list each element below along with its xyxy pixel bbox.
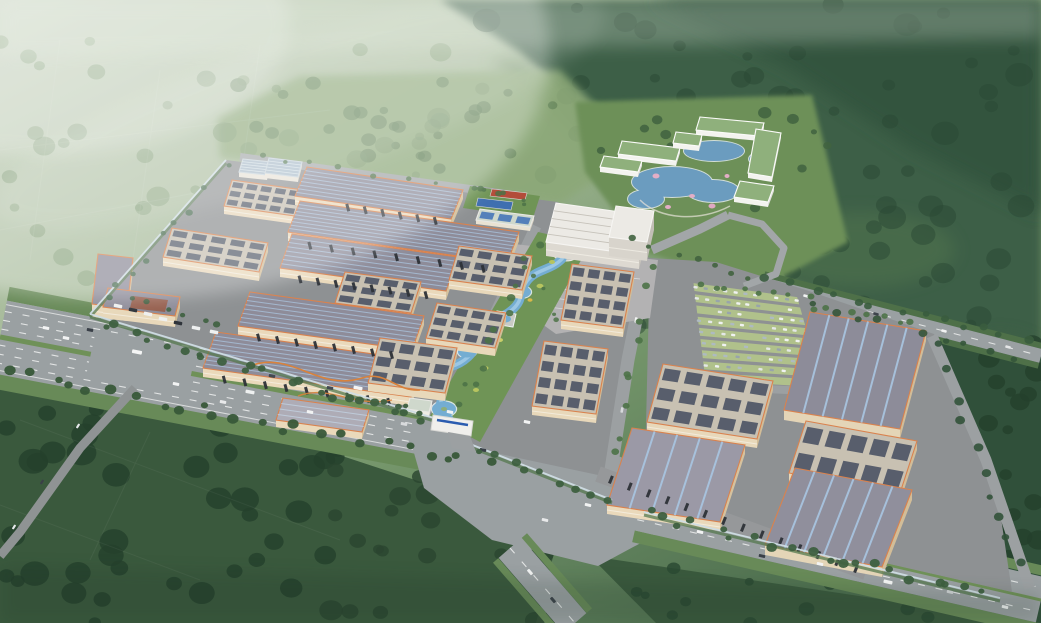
- trees-warehouse-east: [822, 305, 829, 311]
- trees-plaza: [541, 287, 545, 290]
- trees-highway-south: [162, 404, 170, 410]
- dock-trailers-row5: [244, 379, 246, 387]
- trees-intersection: [556, 480, 564, 487]
- trees-highway-north: [181, 347, 190, 355]
- flatted-factory-e2-roof-panel: [557, 363, 570, 374]
- trees-intersection: [536, 468, 543, 474]
- flatted-factory-e1-roof-panel: [600, 285, 613, 295]
- dock-trailers-row3: [407, 289, 409, 297]
- trees-garden-strip: [506, 310, 513, 316]
- flatted-factory-f3-roof-panel: [437, 349, 453, 360]
- trees-highway-north: [355, 397, 364, 405]
- resort-center-block-roof: [673, 132, 702, 146]
- dock-trailers-row4: [372, 349, 374, 357]
- southwest-forest: [99, 529, 128, 554]
- trees-parking-edge: [721, 286, 727, 291]
- dock-trailers-row4: [391, 351, 393, 359]
- southwest-forest: [299, 455, 325, 477]
- trees-highway-north: [197, 354, 204, 360]
- trees-east-road: [870, 559, 880, 568]
- trees-highway-north: [416, 418, 424, 425]
- trees-spine-road: [611, 448, 619, 455]
- flatted-factory-e2-roof-panel: [589, 367, 602, 378]
- trees-warehouse-east: [906, 319, 913, 325]
- mountain-trees: [866, 220, 882, 234]
- trees-sports: [522, 198, 526, 202]
- dock-trailers-row2: [439, 259, 441, 267]
- flatted-factory-e1-roof-panel: [564, 309, 577, 319]
- trees-east-road: [827, 558, 834, 564]
- flatted-factory-f3-roof-panel: [410, 376, 426, 387]
- mountain-trees: [979, 84, 998, 100]
- trees-ne-road-north: [814, 287, 823, 295]
- southwest-forest: [19, 449, 48, 474]
- southwest-forest: [249, 553, 266, 567]
- mountain-trees: [931, 122, 959, 145]
- dock-trailers-row2: [374, 251, 376, 259]
- trees-gate: [395, 404, 402, 410]
- trees-parking-edge: [785, 292, 790, 296]
- trees-plaza: [520, 256, 526, 261]
- trees-highway-north: [345, 394, 354, 402]
- warehouse-east-2-roof: [607, 428, 745, 522]
- flatted-factory-east-1-roof-panel: [717, 417, 736, 431]
- trees-dormitory: [166, 307, 171, 311]
- trees-access-road: [982, 469, 991, 477]
- trees-east-road: [788, 544, 796, 551]
- trees-access-road: [955, 416, 965, 424]
- trees-access-road: [942, 365, 951, 373]
- mountain-trees: [882, 115, 898, 129]
- south-forest: [421, 512, 440, 528]
- trees-dormitory: [143, 299, 149, 304]
- midground-trees: [548, 101, 557, 109]
- dock-trailers-row4: [334, 344, 336, 352]
- trees-east-road: [851, 560, 859, 567]
- mountain-trees: [911, 224, 935, 245]
- trees-intersection: [512, 458, 521, 466]
- east-forest-trees: [988, 375, 1005, 390]
- trees-ne-road-south: [810, 301, 816, 307]
- trees-parking-edge: [698, 282, 705, 288]
- trees-resort-edge: [646, 245, 651, 249]
- mountain-trees: [876, 196, 897, 214]
- trees-highway-south: [385, 438, 393, 445]
- flatted-factory-e2-roof-panel: [592, 351, 605, 362]
- trees-ne-road-south: [832, 309, 841, 317]
- east-forest-trees: [1002, 425, 1013, 434]
- flatted-factory-e2-roof-panel: [554, 379, 567, 390]
- trees-highway-south: [174, 406, 184, 415]
- trees-highway-north: [293, 377, 303, 385]
- southwest-forest: [183, 456, 209, 478]
- flatted-factory-e1-roof-panel: [603, 271, 616, 281]
- trees-garden-strip: [490, 326, 498, 332]
- flatted-factory-f3-roof-panel: [418, 346, 434, 357]
- trees-east-road: [658, 512, 668, 520]
- resort-trees: [823, 142, 831, 149]
- southwest-forest: [314, 546, 336, 564]
- trees-resort-edge: [695, 256, 702, 262]
- trees-access-road: [935, 340, 942, 346]
- flatted-factory-e1-roof-panel: [610, 315, 623, 325]
- trees-warehouse-east: [848, 309, 856, 315]
- trees-east-road: [885, 566, 893, 572]
- flatted-factory-east-1-roof-panel: [651, 407, 670, 421]
- trees-highway-south: [64, 381, 73, 388]
- southwest-forest: [213, 443, 237, 464]
- trees-highway-south: [487, 458, 497, 466]
- flatted-factory-e1-roof-panel: [613, 301, 626, 311]
- garden-shrubs: [528, 298, 533, 302]
- flatted-factory-east-1-roof-panel: [722, 398, 741, 412]
- trees-spine-road: [617, 436, 623, 441]
- south-forest: [418, 548, 436, 563]
- trees-garden-strip: [513, 284, 518, 289]
- flatted-factory-east-1-roof-panel: [700, 394, 719, 408]
- flatted-factory-f3-roof-panel: [433, 364, 449, 375]
- dock-trailers-row4: [315, 341, 317, 349]
- trees-ne-road-south: [919, 329, 928, 337]
- trees-highway-south: [132, 392, 141, 400]
- trees-ne-road-south: [873, 315, 882, 322]
- trees-east-road: [673, 523, 680, 529]
- trees-spine-road: [650, 264, 657, 270]
- trees-ne-road-north: [899, 310, 906, 316]
- trees-east-road: [751, 533, 759, 540]
- flatted-factory-e1-roof-panel: [616, 287, 629, 297]
- resort-trees: [797, 164, 806, 172]
- east-forest-trees: [999, 469, 1012, 480]
- trees-resort-edge: [629, 235, 636, 241]
- resort-trees: [811, 129, 817, 134]
- mountain-trees: [901, 165, 915, 177]
- trees-highway-north: [258, 365, 266, 372]
- flatted-factory-east-1-roof-panel: [684, 372, 703, 386]
- trees-resort-edge: [712, 263, 718, 268]
- flatted-factory-e1-roof-panel: [582, 297, 595, 307]
- trees-ne-road-south: [855, 316, 862, 322]
- east-forest-trees: [1010, 394, 1030, 411]
- trees-garden-strip: [522, 265, 528, 270]
- trees-highway-north: [246, 361, 255, 369]
- resort-trees: [787, 114, 799, 124]
- trees-ne-road-north: [960, 325, 967, 331]
- trees-spine-road: [642, 282, 650, 289]
- flatted-factory-e2-roof-panel: [567, 397, 580, 408]
- dock-trailers-row3: [371, 285, 373, 293]
- trees-ne-road-north: [759, 274, 769, 282]
- trees-dormitory: [213, 321, 220, 327]
- flatted-factory-f3-roof-panel: [395, 359, 411, 370]
- mountain-trees: [789, 46, 806, 61]
- mountain-trees: [919, 276, 932, 287]
- dock-trailers-row4: [258, 334, 260, 342]
- flatted-factory-e2-roof-panel: [541, 361, 554, 372]
- flatted-factory-east-1-roof-panel: [695, 414, 714, 428]
- trees-warehouse-east: [810, 307, 817, 313]
- trees-east-road: [903, 576, 914, 585]
- trees-intersection: [571, 486, 580, 493]
- trees-east-road: [941, 581, 949, 588]
- resort-trees: [640, 125, 649, 133]
- trees-plaza: [552, 313, 556, 316]
- trees-ne-road-south: [986, 348, 994, 355]
- mountain-trees: [931, 263, 955, 283]
- trees-intersection: [603, 497, 611, 504]
- flatted-factory-east-1-roof-panel: [678, 391, 697, 405]
- trees-highway-south: [259, 419, 267, 426]
- scene-layers: [0, 0, 1041, 623]
- trees-highway-south: [445, 456, 452, 462]
- south-forest: [376, 545, 389, 556]
- flatted-factory-e2-roof-panel: [538, 377, 551, 388]
- trees-highway-south: [336, 429, 346, 437]
- southwest-forest: [279, 459, 298, 475]
- trees-ne-road-north: [923, 311, 930, 317]
- mountain-trees: [985, 101, 998, 112]
- trees-highway-south: [427, 452, 437, 461]
- trees-gate: [403, 404, 408, 408]
- mountain-trees: [650, 74, 660, 83]
- trees-garden-strip: [455, 401, 462, 407]
- dock-trailers-row5: [264, 381, 266, 389]
- trees-highway-south: [4, 365, 15, 375]
- trees-ne-road-north: [830, 291, 837, 297]
- trees-resort-edge: [676, 253, 682, 258]
- trees-intersection: [520, 466, 529, 473]
- trees-east-road: [838, 559, 849, 568]
- trees-access-road: [954, 397, 964, 405]
- trees-highway-north: [328, 394, 337, 402]
- trees-highway-north: [400, 409, 408, 416]
- flatted-factory-e2-roof-panel: [573, 365, 586, 376]
- cherry-blossom-trees: [709, 204, 716, 209]
- trees-highway-south: [80, 386, 90, 394]
- trees-east-road: [766, 543, 777, 552]
- trees-garden-strip: [485, 337, 493, 344]
- flatted-factory-e2-roof-panel: [576, 349, 589, 360]
- trees-gate: [381, 399, 388, 405]
- dock-trailers-row5: [223, 376, 225, 384]
- trees-highway-north: [318, 390, 325, 396]
- trees-highway-south: [105, 384, 117, 394]
- flatted-factory-e2-roof-panel: [570, 381, 583, 392]
- mountain-trees: [980, 275, 1000, 292]
- trees-highway-north: [391, 409, 399, 416]
- pond-island: [441, 407, 447, 411]
- trees-ne-road-north: [1024, 336, 1034, 344]
- trees-access-road: [987, 494, 993, 499]
- southwest-forest: [286, 500, 312, 523]
- trees-highway-south: [407, 442, 415, 449]
- flatted-factory-f3-roof-panel: [379, 341, 395, 352]
- trees-parking-edge: [742, 286, 748, 291]
- dock-trailers-row4: [296, 339, 298, 347]
- gatehouse-roof: [407, 398, 432, 412]
- mountain-trees: [863, 165, 880, 180]
- mountain-trees: [918, 195, 943, 216]
- aerial-site-rendering: Aerial rendering of industrial logistics…: [0, 0, 1041, 623]
- trees-east-road: [720, 526, 727, 532]
- trees-ne-road-south: [1011, 357, 1018, 363]
- trees-dormitory: [203, 318, 209, 323]
- trees-highway-north: [109, 320, 119, 328]
- trees-access-road: [1016, 559, 1025, 567]
- flatted-factory-e1-roof-panel: [587, 269, 600, 279]
- trees-highway-south: [206, 411, 216, 420]
- dock-trailers-row2: [482, 265, 484, 273]
- trees-highway-north: [217, 357, 227, 365]
- flatted-factory-e1-roof-panel: [569, 281, 582, 291]
- flatted-factory-east-1-roof-panel: [750, 382, 769, 396]
- trees-intersection: [586, 491, 595, 498]
- trees-resort-edge: [745, 276, 750, 281]
- dock-trailers-row4: [353, 346, 355, 354]
- trees-access-road: [994, 513, 1004, 521]
- trees-parking-edge: [807, 293, 814, 299]
- trees-highway-south: [287, 419, 298, 428]
- dock-trailers-row3: [335, 280, 337, 288]
- trees-highway-north: [103, 324, 109, 329]
- south-forest: [349, 534, 366, 548]
- southeast-trees: [667, 562, 681, 574]
- garden-shrubs: [507, 328, 512, 332]
- south-forest: [327, 463, 343, 477]
- flatted-factory-e2-roof-panel: [586, 383, 599, 394]
- trees-ne-road-south: [943, 338, 949, 343]
- flatted-factory-e1-roof-panel: [618, 273, 631, 283]
- flatted-factory-e1-roof-panel: [566, 295, 579, 305]
- trees-sports: [522, 203, 526, 207]
- trees-east-road: [808, 547, 819, 556]
- trees-highway-south: [55, 377, 63, 383]
- mountain-trees: [986, 248, 1011, 269]
- south-forest: [328, 509, 342, 521]
- trees-ne-road-north: [855, 299, 863, 306]
- mountain-trees: [744, 67, 765, 84]
- flatted-factory-f3-roof-panel: [399, 344, 415, 355]
- trees-plaza: [531, 274, 536, 278]
- garden-shrubs: [473, 388, 479, 392]
- mountain-trees: [965, 58, 978, 69]
- dock-trailers-row3: [425, 291, 427, 299]
- trees-access-road: [974, 443, 984, 451]
- trees-east-road: [960, 583, 969, 591]
- flatted-factory-f3-roof-panel: [414, 361, 430, 372]
- mountain-trees: [882, 80, 895, 91]
- trees-east-road: [686, 516, 695, 523]
- trees-ne-road-north: [980, 323, 988, 330]
- trees-ne-road-north: [785, 278, 794, 286]
- trees-east-road: [725, 536, 731, 541]
- trees-spine-road: [636, 318, 643, 324]
- trees-warehouse-east: [863, 312, 870, 318]
- trees-garden-strip: [507, 294, 516, 301]
- trees-highway-south: [316, 429, 327, 438]
- flatted-factory-e2-roof-panel: [583, 399, 596, 410]
- trees-ne-road-north: [941, 315, 949, 322]
- flatted-factory-east-1-roof-panel: [706, 375, 725, 389]
- mountain-trees: [1008, 46, 1020, 56]
- dock-trailers-row2: [417, 256, 419, 264]
- trees-ne-road-south: [960, 341, 966, 346]
- south-forest: [389, 487, 411, 505]
- trees-highway-south: [279, 428, 287, 435]
- trees-parking-edge: [771, 289, 777, 294]
- trees-intersection: [476, 449, 482, 454]
- trees-intersection: [490, 451, 498, 458]
- cherry-blossom-trees: [653, 174, 660, 179]
- dock-trailers-row2: [396, 254, 398, 262]
- cherry-blossom-trees: [725, 174, 730, 178]
- resort-trees: [758, 107, 771, 118]
- flatted-factory-f3-roof-panel: [429, 379, 445, 390]
- trees-highway-south: [452, 452, 460, 459]
- trees-highway-north: [144, 338, 150, 343]
- cherry-blossom-trees: [665, 205, 671, 209]
- flatted-factory-e1-roof-panel: [595, 313, 608, 323]
- trees-highway-south: [25, 368, 35, 376]
- dock-trailers-row4: [277, 336, 279, 344]
- flatted-factory-east-1-roof-panel: [673, 410, 692, 424]
- flatted-factory-east-1-roof-panel: [656, 388, 675, 402]
- trees-highway-south: [227, 414, 239, 424]
- trees-highway-north: [133, 329, 142, 337]
- flatted-factory-e2-roof-panel: [551, 395, 564, 406]
- southeast-trees: [745, 578, 754, 586]
- dock-trailers-row3: [317, 278, 319, 286]
- mountain-trees: [1008, 195, 1035, 218]
- flatted-factory-e2-roof-panel: [535, 393, 548, 404]
- flatted-factory-e1-roof-panel: [597, 299, 610, 309]
- trees-highway-south: [201, 402, 208, 408]
- flatted-factory-east-1-roof-panel: [662, 368, 681, 382]
- trees-garden-strip: [462, 382, 467, 386]
- flatted-factory-e2-roof-panel: [544, 345, 557, 356]
- resort-trees: [652, 115, 663, 124]
- trees-warehouse-east: [881, 313, 887, 318]
- trees-resort-edge: [728, 271, 734, 276]
- flatted-factory-east-1-roof-panel: [744, 401, 763, 415]
- southwest-forest: [38, 406, 56, 421]
- flatted-factory-f3-roof-panel: [375, 356, 391, 367]
- garden-shrubs: [549, 260, 555, 264]
- trees-parking-edge: [756, 291, 762, 296]
- trees-plaza: [553, 317, 559, 322]
- flatted-factory-e1-roof-panel: [572, 267, 585, 277]
- dock-trailers-row3: [389, 287, 391, 295]
- resort-ponds: [687, 180, 739, 202]
- resort-trees: [597, 147, 605, 154]
- mountain-trees: [990, 172, 1012, 191]
- mountain-trees: [1005, 63, 1033, 86]
- southwest-forest: [264, 533, 283, 550]
- trees-ne-road-north: [995, 332, 1002, 338]
- trees-east-road: [648, 507, 656, 514]
- flatted-factory-east-1-roof-panel: [739, 421, 758, 435]
- mountain-trees: [869, 242, 890, 260]
- south-forest: [385, 505, 399, 517]
- trees-spine-road: [635, 337, 643, 344]
- dock-trailers-row2: [461, 262, 463, 270]
- trees-warehouse-east: [898, 321, 903, 325]
- trees-sports: [495, 191, 502, 197]
- trees-spine-road: [625, 374, 632, 380]
- dock-trailers-row5: [285, 384, 287, 392]
- trees-garden-strip: [473, 382, 479, 387]
- mountain-trees: [742, 52, 752, 61]
